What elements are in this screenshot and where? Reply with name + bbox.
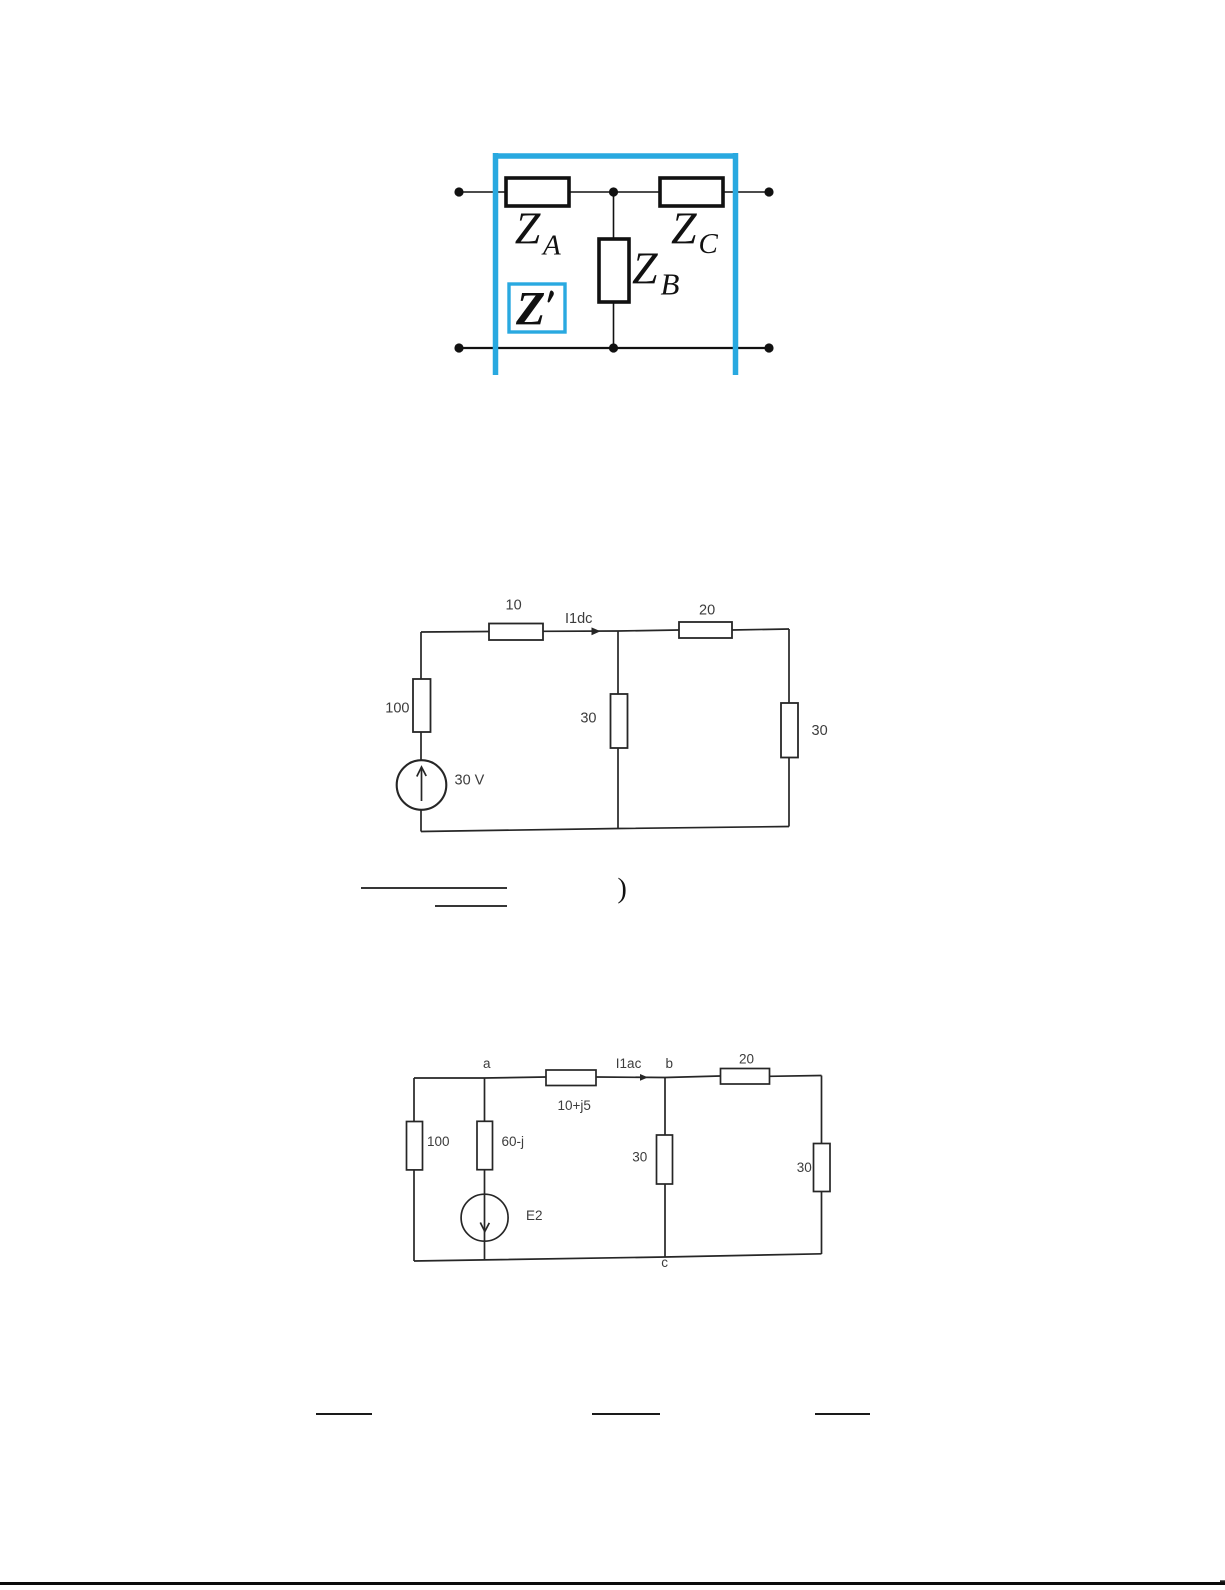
svg-text:C: C: [699, 228, 719, 260]
svg-text:c: c: [661, 1255, 668, 1270]
svg-text:Z: Z: [632, 243, 658, 294]
svg-text:20: 20: [739, 1052, 754, 1067]
svg-text:10: 10: [506, 597, 522, 613]
svg-text:20: 20: [699, 603, 715, 619]
svg-text:): ): [618, 874, 627, 905]
svg-text:60-j: 60-j: [502, 1134, 525, 1149]
svg-text:30: 30: [580, 710, 596, 726]
svg-text:30: 30: [812, 723, 828, 739]
svg-text:A: A: [541, 230, 561, 262]
svg-text:I1dc: I1dc: [565, 611, 592, 627]
svg-text:I1ac: I1ac: [616, 1056, 642, 1071]
svg-text:10+j5: 10+j5: [558, 1098, 591, 1113]
svg-text:E2: E2: [526, 1208, 543, 1223]
svg-text:30: 30: [632, 1149, 647, 1164]
svg-text:30: 30: [797, 1160, 812, 1175]
svg-text:Z: Z: [515, 283, 545, 336]
svg-text:100: 100: [427, 1134, 450, 1149]
svg-text:B: B: [661, 267, 680, 302]
svg-text:b: b: [666, 1056, 674, 1071]
svg-text:Z: Z: [515, 203, 541, 254]
svg-text:30 V: 30 V: [455, 772, 485, 788]
svg-text:100: 100: [385, 700, 409, 716]
svg-text:Z: Z: [671, 203, 697, 254]
svg-text:a: a: [483, 1056, 491, 1071]
